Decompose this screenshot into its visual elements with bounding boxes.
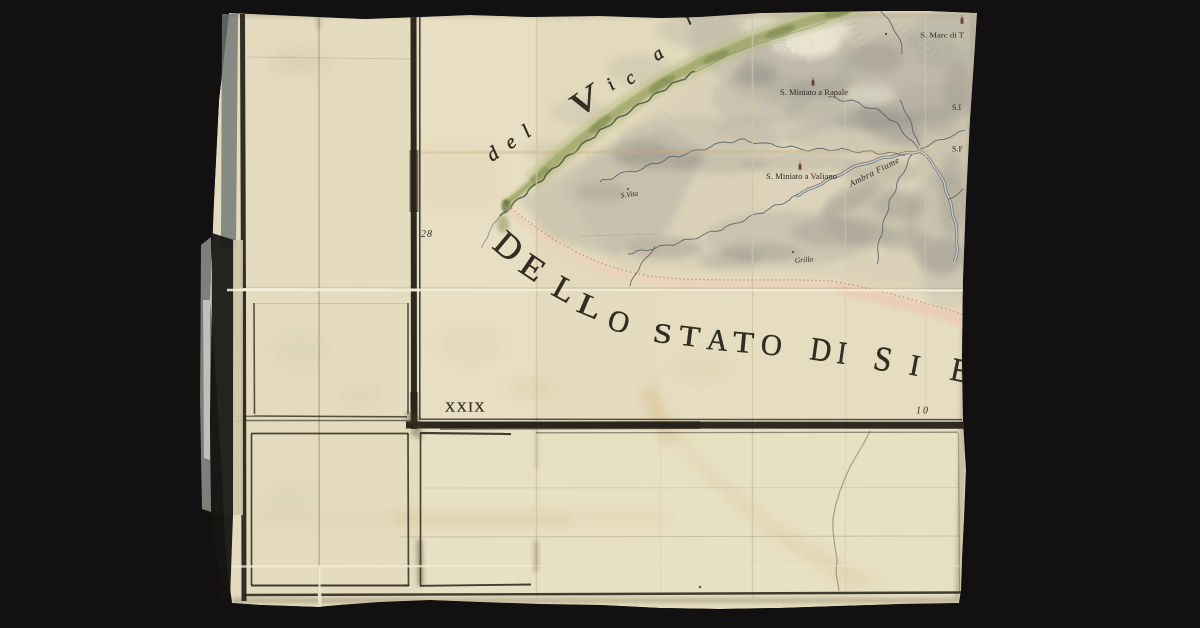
svg-text:T: T xyxy=(731,325,755,360)
svg-text:A: A xyxy=(705,323,730,358)
svg-text:S.I: S.I xyxy=(952,103,961,112)
svg-text:S.F: S.F xyxy=(952,145,963,154)
svg-text:S. Miniato a Valiano: S. Miniato a Valiano xyxy=(766,171,837,181)
svg-text:S. Marc di T: S. Marc di T xyxy=(920,31,964,40)
svg-text:O: O xyxy=(759,328,783,363)
svg-text:S. Miniato a Rapale: S. Miniato a Rapale xyxy=(780,87,848,97)
svg-text:28: 28 xyxy=(421,229,433,240)
svg-text:Grillo: Grillo xyxy=(794,254,813,265)
svg-text:10: 10 xyxy=(916,406,930,417)
svg-text:XXIX: XXIX xyxy=(445,401,486,416)
svg-text:T: T xyxy=(677,320,702,354)
